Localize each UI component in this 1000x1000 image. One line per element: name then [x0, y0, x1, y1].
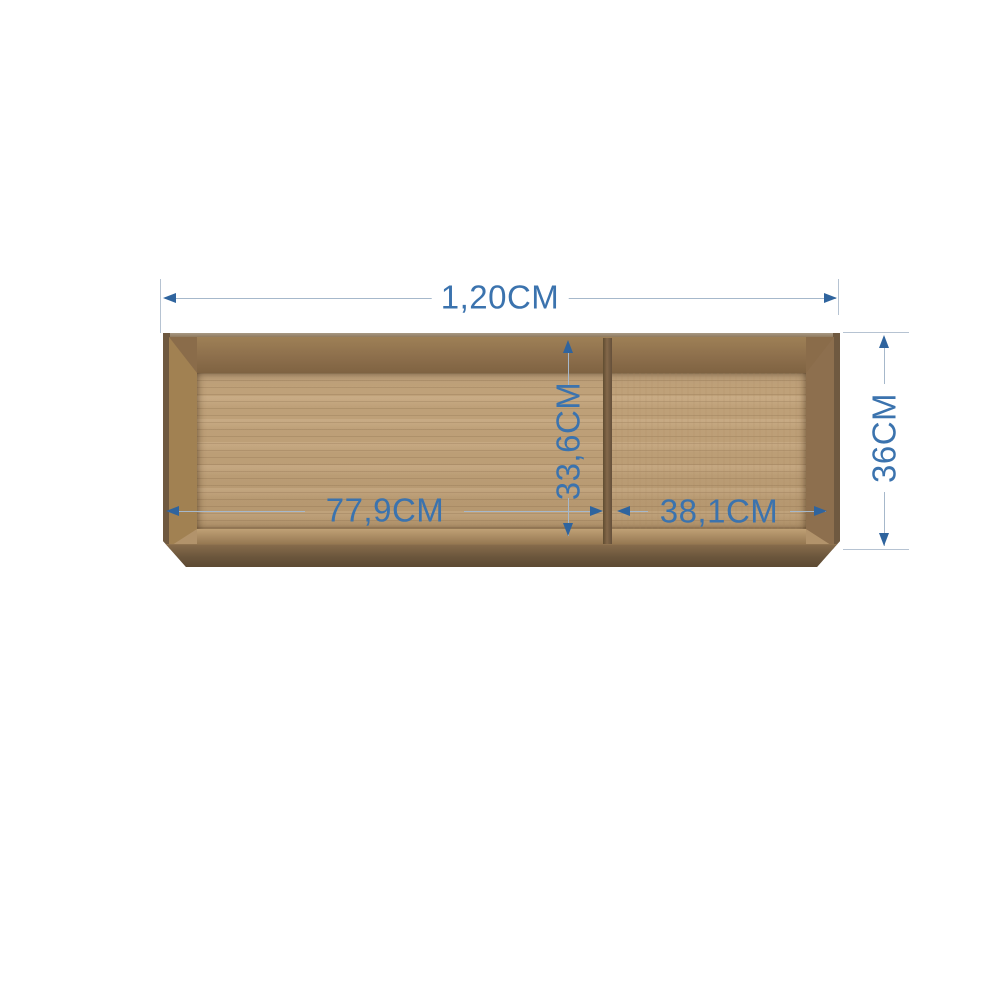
arrow-left-icon	[163, 293, 176, 303]
dimension-label: 36CM	[866, 384, 903, 492]
arrow-left-icon	[617, 506, 630, 516]
arrow-up-icon	[879, 335, 889, 348]
extension-line	[160, 279, 161, 333]
dimension-line	[464, 511, 601, 512]
arrow-down-icon	[563, 523, 573, 536]
dimension-line	[168, 511, 305, 512]
arrow-right-icon	[590, 506, 603, 516]
shelf-divider-panel	[603, 338, 612, 547]
arrow-left-icon	[166, 506, 179, 516]
shelf-front-bottom-edge	[163, 544, 840, 567]
dimension-label: 1,20CM	[432, 279, 569, 316]
dimension-label: 38,1CM	[660, 495, 779, 528]
arrow-up-icon	[563, 340, 573, 353]
extension-line	[843, 549, 909, 550]
dimension-label: 77,9CM	[326, 494, 445, 527]
extension-line	[838, 279, 839, 315]
shelf-top-inner-surface	[197, 337, 806, 373]
arrow-down-icon	[879, 533, 889, 546]
extension-line	[843, 332, 909, 333]
arrow-right-icon	[814, 506, 827, 516]
shelf-cabinet	[163, 333, 840, 567]
dimension-label: 33,6CM	[552, 382, 585, 501]
arrow-right-icon	[824, 293, 837, 303]
diagram-canvas: 1,20CM 36CM 33,6CM 77,9CM 38,1CM	[0, 0, 1000, 1000]
